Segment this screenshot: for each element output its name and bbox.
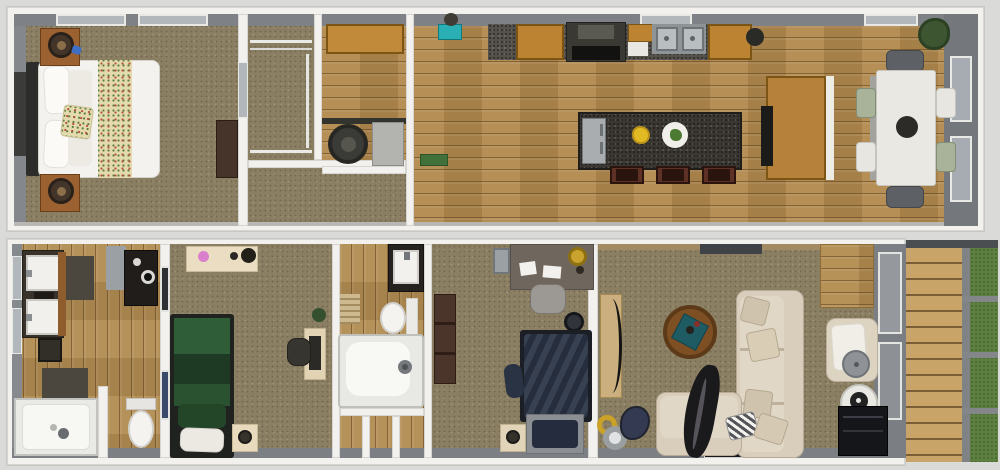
patio-door-upper <box>878 252 902 334</box>
bedroom3-stool <box>564 312 584 332</box>
sofa-pillow-2 <box>745 327 780 362</box>
walkin-closet-floor <box>248 14 314 160</box>
sink-drain-1 <box>664 36 669 41</box>
deck-rail-2 <box>962 352 998 358</box>
island-flowers <box>632 126 650 144</box>
plate-garnish <box>670 129 682 141</box>
vanity-tray <box>34 292 54 299</box>
dresser-decor-knob <box>241 248 256 263</box>
bedroom2-window-2 <box>160 370 170 420</box>
storage-room-floor <box>248 168 406 226</box>
wall-laundry-hall <box>406 14 414 226</box>
closet-shelf-1 <box>250 40 312 43</box>
dining-chair-east-1 <box>936 88 956 118</box>
bath-gray-rug <box>106 246 126 290</box>
bar-stool-3-seat <box>708 169 730 181</box>
dresser-decor-dot <box>230 252 238 260</box>
desk-paper-2 <box>543 265 562 279</box>
desk-paper-1 <box>519 261 537 276</box>
bedroom-window-1 <box>56 14 126 26</box>
shower-handle <box>58 428 69 439</box>
appliance-handle-2 <box>600 142 603 154</box>
entry-wood-mat <box>820 244 874 308</box>
dining-chair-east-2 <box>936 142 956 172</box>
hall-closet-divider-1 <box>362 416 370 458</box>
bath-window-1 <box>12 256 22 300</box>
closet-window <box>238 62 248 118</box>
bedroom2-chair <box>287 338 311 366</box>
upper-bottom-wall-shadow <box>14 222 944 226</box>
bedroom2-window-1 <box>160 266 170 312</box>
vanity-wood-trim <box>58 252 66 336</box>
dishwasher <box>628 42 648 56</box>
corner-plant <box>918 18 950 50</box>
upper-cabinet-a <box>516 24 564 60</box>
bed1-runner <box>98 60 132 178</box>
bed2-duvet-band <box>174 354 230 384</box>
living-top-wall-inset <box>700 244 762 254</box>
entry-doormat <box>420 154 448 166</box>
dryer <box>372 122 404 166</box>
hallbath-faucet <box>404 252 410 260</box>
dining-chair-west-2 <box>856 142 876 172</box>
deck-floor <box>906 248 966 462</box>
fruit-bowl <box>746 28 764 46</box>
nightstand3-speaker <box>506 430 520 444</box>
sideboard <box>766 76 826 180</box>
vanity-faucet-2 <box>26 314 32 321</box>
pillow-button <box>854 362 859 367</box>
laundry-basket <box>438 24 462 40</box>
desk-tablet <box>493 248 510 274</box>
bar-stool-2-seat <box>662 169 684 181</box>
deck-rail-3 <box>962 408 998 414</box>
bench-cushion <box>532 420 578 448</box>
cooktop <box>572 46 620 60</box>
range-hood-vent <box>578 25 614 39</box>
bed2-duvet-top <box>174 318 230 354</box>
desk-lamp <box>568 247 587 266</box>
bed3-duvet <box>524 334 588 418</box>
dining-chair-west-1 <box>856 88 876 118</box>
media-cabinet-line-2 <box>843 430 883 432</box>
dining-window-top <box>864 14 918 26</box>
dining-chair-south <box>886 186 924 208</box>
lamp-bottom-finial <box>57 187 66 196</box>
shower-drain <box>50 424 57 431</box>
wall-closet-laundry <box>314 14 322 160</box>
bath-mat-2 <box>42 368 88 398</box>
bath-mat-1 <box>66 256 94 300</box>
closet-shelf-2 <box>250 48 312 50</box>
bed2-duvet-low <box>174 384 230 406</box>
shower-partition-wall <box>98 386 108 458</box>
deck-rail-1 <box>962 296 998 302</box>
lamp-top-finial <box>57 41 66 50</box>
bar-stool-1-seat <box>616 169 638 181</box>
bed2-pillow-green <box>178 404 226 428</box>
wall-hallbath-bottom <box>340 408 424 416</box>
wardrobe-shelf-2 <box>434 352 456 355</box>
floor-plan-stage <box>0 0 1000 470</box>
desk-lamp-base <box>576 266 584 274</box>
toilet-1-bowl <box>128 410 154 448</box>
wall-alcove-bottom <box>322 166 406 174</box>
closet-shelf-3 <box>250 150 312 153</box>
bedroom3-wardrobe <box>434 294 456 384</box>
wall-hallbath-bedroom3 <box>424 244 432 458</box>
media-cabinet-line-1 <box>843 416 883 418</box>
dining-chair-north <box>886 50 924 72</box>
cabinet-decor-dot <box>133 258 141 266</box>
bedroom-side-chest <box>216 120 238 178</box>
deck-top-band <box>906 240 998 248</box>
toilet-1-tank <box>126 398 156 410</box>
side-table-decor-dot <box>856 398 861 403</box>
bedroom2-plant <box>312 308 326 322</box>
sideboard-edge <box>826 76 834 180</box>
washer-lid <box>341 137 356 152</box>
vanity-faucet-1 <box>26 270 32 277</box>
tray-item-1 <box>686 326 694 334</box>
bedroom-window-2 <box>138 14 208 26</box>
dresser-decor-pink <box>198 251 209 262</box>
sink-drain-2 <box>690 36 695 41</box>
hallbath-mat <box>340 294 360 324</box>
wardrobe-shelf-1 <box>434 322 456 325</box>
kettle-decor <box>444 13 458 26</box>
bed2-pillow-white <box>180 427 225 453</box>
closet-rod <box>306 54 309 148</box>
hall-closet-divider-2 <box>392 416 400 458</box>
toilet-2-bowl <box>380 302 406 334</box>
tray-item-2 <box>694 321 700 327</box>
wall-bedroom-closet <box>238 14 248 226</box>
bath-window-2 <box>12 308 22 354</box>
table-centerpiece <box>896 116 918 138</box>
bed1-accent-pillow <box>60 104 94 140</box>
upper-cabinet-c <box>708 24 752 60</box>
sideboard-tv <box>761 106 773 166</box>
appliance-handle-1 <box>600 124 603 136</box>
laundry-hamper <box>38 338 62 362</box>
bathtub-faucet-dot <box>402 364 408 370</box>
nightstand-speaker <box>238 430 252 444</box>
laundry-upper-cabinet <box>326 24 404 54</box>
cabinet-decor-ring <box>141 270 155 284</box>
bedroom3-chair <box>530 284 566 314</box>
toilet-2-tank <box>406 298 418 338</box>
